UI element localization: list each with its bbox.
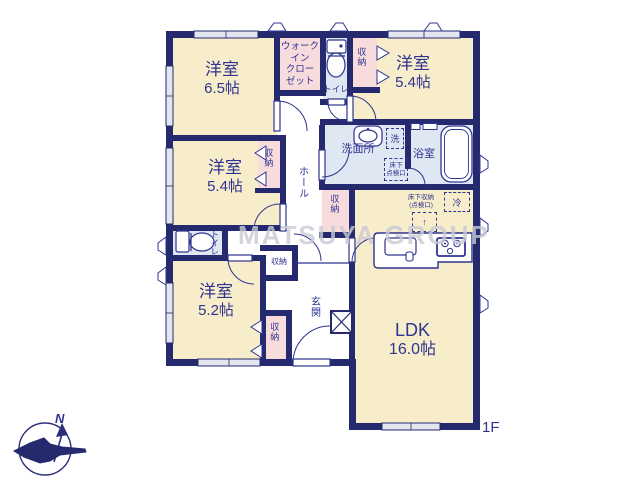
room-label-closet-bottom: 収納 — [269, 322, 279, 342]
room-label-closet-small: 収納 — [264, 257, 294, 266]
wic-line: クロー — [277, 64, 323, 76]
room-label-bathroom: 浴室 — [406, 148, 442, 161]
compass-north-label: N — [55, 412, 64, 427]
room-size: 6.5帖 — [168, 80, 276, 97]
underfloor-hatch-box: 床下 点検口 — [384, 158, 408, 181]
watermark: MATSUYA GROUP — [238, 220, 458, 251]
underfloor-storage-label: 床下収納 (点検口) — [398, 194, 444, 210]
room-label-yoshitsu-54-right: 洋室 5.4帖 — [352, 54, 474, 91]
room-name: LDK — [352, 320, 473, 341]
bathtub-icon — [441, 126, 472, 182]
underfloor-hatch-label: 床下 点検口 — [386, 162, 406, 178]
room-size: 5.4帖 — [352, 74, 474, 91]
room-label-closet-mid: 収納 — [329, 194, 339, 214]
fridge-label: 冷 — [452, 196, 461, 209]
underfloor-storage-line1: 床下収納 — [398, 194, 444, 202]
wic-line: ウォーク — [277, 41, 323, 53]
underfloor-hatch-line1: 床下 — [390, 162, 403, 169]
room-name: 洋室 — [172, 282, 260, 302]
fridge-box: 冷 — [444, 192, 470, 212]
room-label-yoshitsu-65: 洋室 6.5帖 — [168, 60, 276, 97]
underfloor-hatch-line2: 点検口 — [386, 170, 406, 177]
room-size: 5.2帖 — [172, 302, 260, 319]
room-label-genkan: 玄関 — [308, 296, 320, 318]
x-box — [331, 311, 352, 333]
room-label-toilet-upper: トイレ — [322, 85, 350, 95]
room-label-ldk: LDK 16.0帖 — [352, 320, 473, 359]
room-label-toilet-lower: トイレ — [209, 230, 219, 256]
room-label-hall: ホール — [296, 166, 308, 199]
toilet-icon-upper — [327, 40, 346, 77]
room-label-closet-left-room: 収納 — [263, 148, 273, 168]
room-size: 16.0帖 — [352, 341, 473, 359]
bath-counter-icon — [411, 124, 437, 130]
compass-north-indicator — [14, 423, 86, 475]
room-label-yoshitsu-52: 洋室 5.2帖 — [172, 282, 260, 319]
room-name: 洋室 — [352, 54, 474, 74]
wic-line: イン — [277, 53, 323, 65]
room-label-washroom: 洗面所 — [322, 143, 394, 156]
room-size: 5.4帖 — [170, 178, 280, 195]
underfloor-storage-line2: (点検口) — [398, 202, 444, 210]
floor-label: 1F — [482, 419, 500, 436]
room-name: 洋室 — [168, 60, 276, 80]
floor-plan: 洋室 6.5帖 ウォーク イン クロー ゼット トイレ 収納 洋室 5.4帖 洗… — [0, 0, 640, 480]
wic-line: ゼット — [277, 76, 323, 88]
room-label-wic: ウォーク イン クロー ゼット — [277, 41, 323, 87]
